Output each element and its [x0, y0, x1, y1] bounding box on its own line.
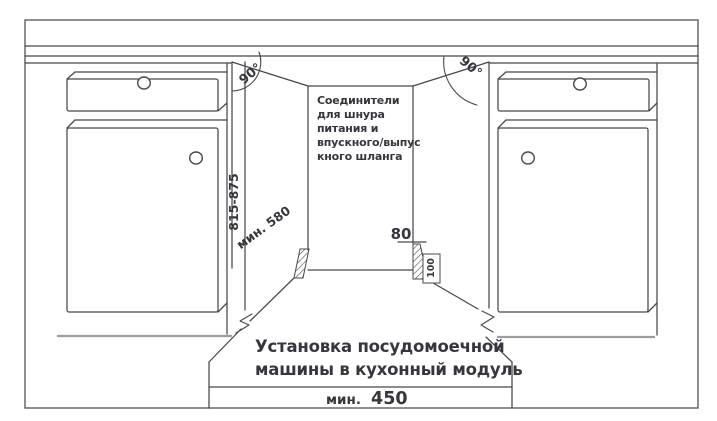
- svg-text:Соединители: Соединители: [317, 94, 399, 107]
- knob-icon: [522, 152, 535, 164]
- step-height-label: 80: [391, 225, 412, 243]
- diagram-canvas: 90° 90° 815-875 мин. 580 80 100 Соединит…: [0, 0, 717, 421]
- svg-text:машины в кухонный модуль: машины в кухонный модуль: [255, 360, 523, 379]
- left-cabinet-door: [67, 120, 227, 312]
- svg-text:для шнура: для шнура: [317, 108, 385, 121]
- left-cabinet: [57, 63, 232, 336]
- svg-text:питания и: питания и: [317, 122, 378, 135]
- right-cabinet: [497, 63, 657, 337]
- svg-text:Установка посудомоечной: Установка посудомоечной: [255, 337, 504, 356]
- installation-diagram: 90° 90° 815-875 мин. 580 80 100 Соединит…: [0, 0, 717, 421]
- svg-text:кного шланга: кного шланга: [317, 150, 402, 163]
- right-cabinet-door: [498, 120, 657, 312]
- knob-icon: [190, 152, 203, 164]
- knob-icon: [138, 77, 151, 89]
- svg-text:впускного/выпус: впускного/выпус: [317, 136, 420, 149]
- knob-icon: [574, 78, 587, 90]
- step-depth-label: 100: [426, 258, 437, 278]
- niche-height-label: 815-875: [226, 173, 241, 230]
